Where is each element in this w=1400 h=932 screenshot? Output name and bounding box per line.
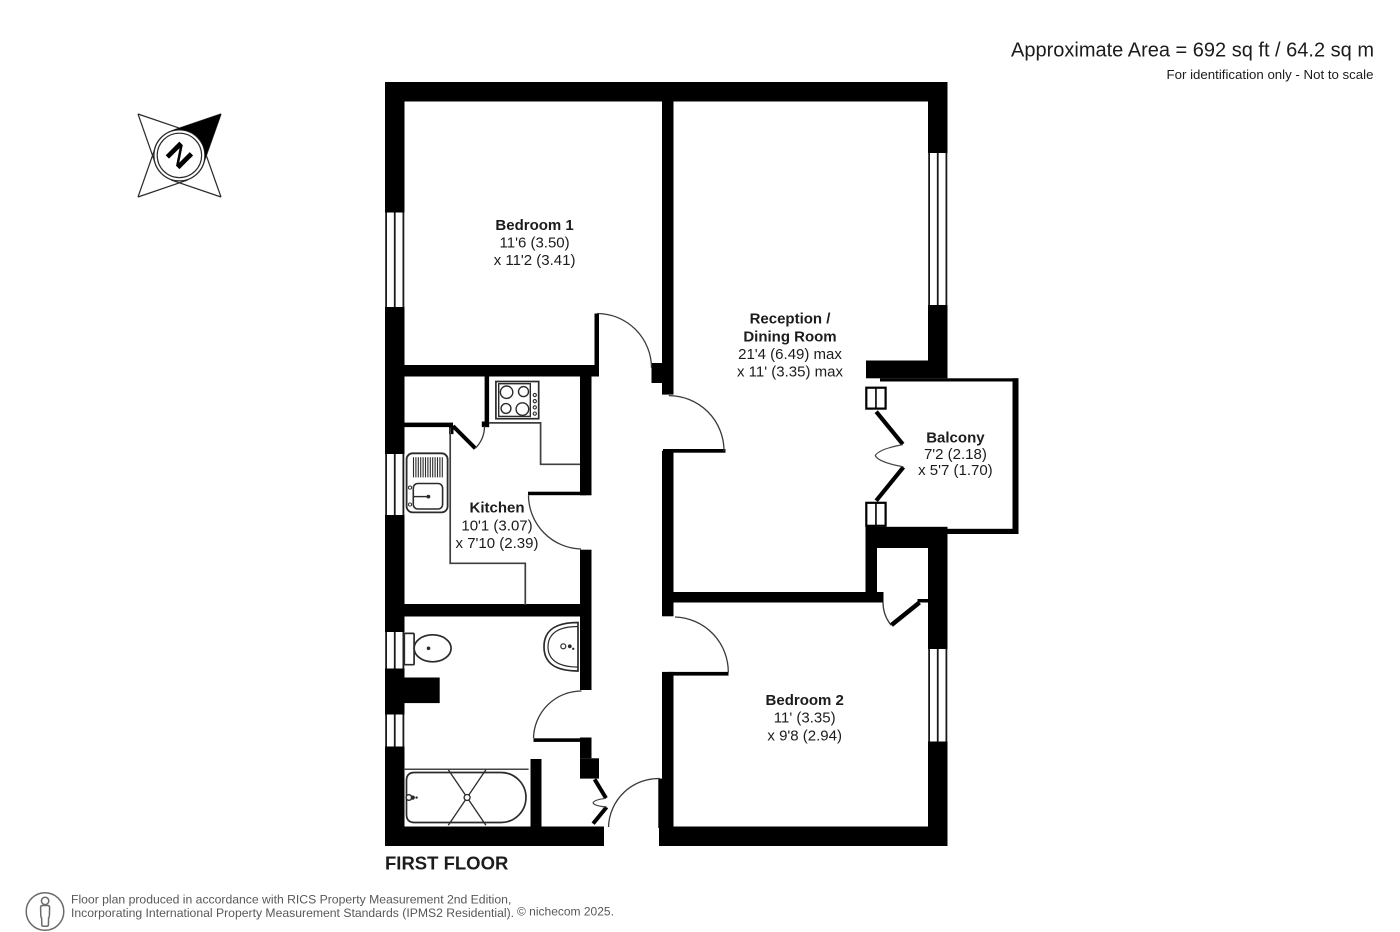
svg-text:7'2 (2.18): 7'2 (2.18) xyxy=(924,446,987,463)
svg-text:21'4 (6.49) max: 21'4 (6.49) max xyxy=(738,346,842,363)
svg-text:x 9'8 (2.94): x 9'8 (2.94) xyxy=(767,727,842,744)
svg-text:Floor plan produced in accorda: Floor plan produced in accordance with R… xyxy=(71,892,511,906)
svg-text:x 11'2 (3.41): x 11'2 (3.41) xyxy=(494,252,576,269)
svg-text:Dining Room: Dining Room xyxy=(743,328,836,345)
svg-text:x 5'7 (1.70): x 5'7 (1.70) xyxy=(918,462,993,479)
svg-text:Bedroom 1: Bedroom 1 xyxy=(495,217,573,234)
svg-text:x 7'10 (2.39): x 7'10 (2.39) xyxy=(456,535,539,552)
svg-text:Reception /: Reception / xyxy=(750,311,832,328)
svg-text:10'1 (3.07): 10'1 (3.07) xyxy=(461,517,532,534)
svg-text:Incorporating International Pr: Incorporating International Property Mea… xyxy=(71,906,514,920)
svg-text:Bedroom 2: Bedroom 2 xyxy=(766,692,844,709)
svg-text:Balcony: Balcony xyxy=(926,429,985,446)
svg-text:FIRST FLOOR: FIRST FLOOR xyxy=(385,853,508,874)
svg-text:For identification only - Not: For identification only - Not to scale xyxy=(1167,67,1374,82)
svg-text:© nichecom 2025.: © nichecom 2025. xyxy=(517,905,614,919)
svg-text:11' (3.35): 11' (3.35) xyxy=(774,710,836,727)
svg-text:Kitchen: Kitchen xyxy=(469,500,524,517)
svg-text:Approximate Area = 692 sq ft /: Approximate Area = 692 sq ft / 64.2 sq m xyxy=(1011,40,1374,62)
svg-text:11'6 (3.50): 11'6 (3.50) xyxy=(500,235,570,252)
svg-text:x 11' (3.35) max: x 11' (3.35) max xyxy=(737,364,843,381)
